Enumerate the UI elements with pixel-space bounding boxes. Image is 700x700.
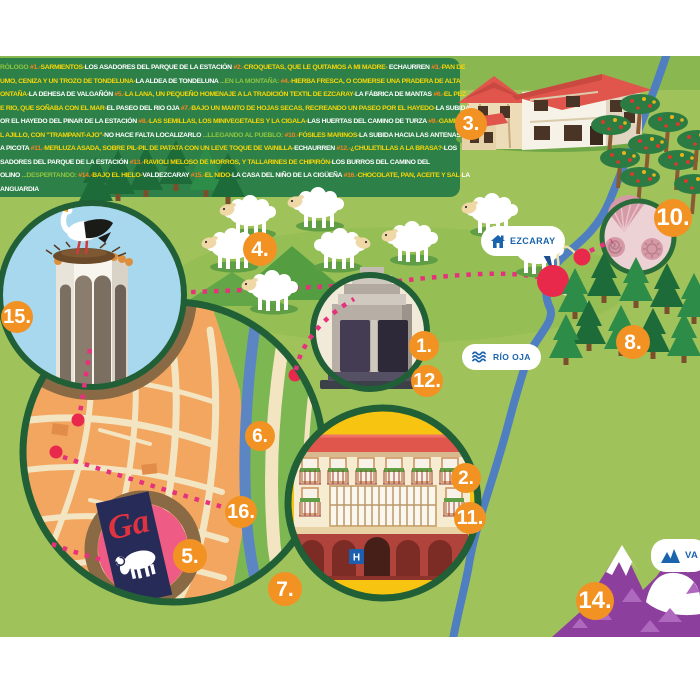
map-marker-8[interactable]: 8. — [616, 325, 650, 359]
legend-segment: PAN DE — [442, 64, 465, 71]
legend-segment: BAJO EL HIELO- — [92, 172, 142, 179]
legend-segment: LA LANA, UN PEQUEÑO HOMENAJE A LA TRADIC… — [125, 91, 355, 98]
menu-legend-panel: RÓLOGO #1.-SARMIENTOS-LOS ASADORES DEL P… — [0, 61, 462, 196]
valdezcaray-sign-label: VA — [685, 550, 698, 561]
legend-segment: ...LLEGANDO AL PUEBLO: — [201, 132, 284, 139]
legend-line: OLINO ...DESPERTANDO: #14.-BAJO EL HIELO… — [0, 169, 462, 183]
legend-segment: MERLUZA ASADA, SOBRE PIL-PIL DE PATATA C… — [44, 145, 294, 152]
legend-segment: EL PASEO DEL RIO OJA — [106, 105, 179, 112]
legend-segment: #13.- — [128, 159, 144, 166]
legend-line: L AJILLO, CON "TRAMPANT-AJO"-NO HACE FAL… — [0, 129, 462, 143]
glazed-gallery — [330, 486, 436, 526]
waves-icon — [472, 351, 488, 363]
legend-segment: LA DEHESA DE VALGAÑÓN — [29, 91, 113, 98]
legend-segment: E RIO, QUE SOÑABA CON EL MAR- — [0, 105, 106, 112]
church-tower — [54, 249, 133, 390]
map-marker-5[interactable]: 5. — [173, 539, 207, 573]
map-marker-2[interactable]: 2. — [451, 463, 481, 493]
mountain-icon — [661, 549, 680, 563]
svg-text:H: H — [353, 553, 360, 564]
legend-segment: A PICOTA — [0, 145, 29, 152]
legend-segment: #10.- — [285, 132, 299, 139]
legend-line: RÓLOGO #1.-SARMIENTOS-LOS ASADORES DEL P… — [0, 61, 462, 75]
legend-segment: SADORES DEL PARQUE DE LA ESTACIÓN — [0, 159, 128, 166]
legend-segment: #2.- — [232, 64, 244, 71]
legend-segment: VALDEZCARAY — [142, 172, 189, 179]
legend-line: ONTAÑA-LA DEHESA DE VALGAÑÓN #5.-LA LANA… — [0, 88, 462, 102]
legend-segment: #4.- — [281, 78, 292, 85]
legend-segment: ...EN LA MONTAÑA: — [218, 78, 280, 85]
house-icon — [491, 235, 505, 248]
hotel-building: H — [288, 436, 478, 580]
map-marker-14[interactable]: 14. — [576, 582, 614, 620]
map-marker-11[interactable]: 11. — [454, 502, 486, 534]
hotel-h-sign: H — [349, 549, 364, 564]
legend-segment: ANGUARDIA — [0, 186, 39, 193]
legend-line: ANGUARDIA — [0, 183, 462, 197]
legend-segment: L AJILLO, CON "TRAMPANT-AJO"- — [0, 132, 104, 139]
legend-segment: #15.- — [189, 172, 205, 179]
legend-line: A PICOTA #11.-MERLUZA ASADA, SOBRE PIL-P… — [0, 142, 462, 156]
legend-segment: #5.- — [113, 91, 125, 98]
legend-segment: #14.- — [78, 172, 92, 179]
legend-segment: OR EL HAYEDO DEL PINAR DE LA ESTACIÓN — [0, 118, 137, 125]
legend-segment: LA FÁBRICA DE MANTAS — [355, 91, 432, 98]
legend-segment: NO HACE FALTA LOCALIZARLO — [104, 132, 201, 139]
rio-oja-sign[interactable]: RÍO OJA — [462, 344, 541, 370]
ezcaray-sign[interactable]: EZCARAY — [481, 226, 565, 256]
legend-segment: EL NIDO- — [205, 172, 232, 179]
legend-segment: LAS HUERTAS DEL CAMINO DE TURZA — [307, 118, 426, 125]
rio-oja-sign-label: RÍO OJA — [493, 352, 531, 362]
top-margin — [0, 0, 700, 56]
legend-segment: LA SUBIDA HACIA LAS ANTENAS DE — [359, 132, 471, 139]
legend-segment: SARMIENTOS- — [41, 64, 85, 71]
valdezcaray-sign[interactable]: VA — [651, 539, 700, 572]
legend-segment: ...DESPERTANDO: — [22, 172, 79, 179]
legend-segment: LOS ASADORES DEL PARQUE DE LA ESTACIÓN — [85, 64, 232, 71]
legend-line: SADORES DEL PARQUE DE LA ESTACIÓN #13.-R… — [0, 156, 462, 170]
legend-line: E RIO, QUE SOÑABA CON EL MAR-EL PASEO DE… — [0, 102, 462, 116]
legend-segment: CHOCOLATE, PAN, ACEITE Y SAL- — [358, 172, 462, 179]
legend-segment: #12.- — [335, 145, 351, 152]
legend-segment: #8.- — [137, 118, 149, 125]
legend-segment: FÓSILES MARINOS- — [299, 132, 360, 139]
legend-segment: #1.- — [30, 64, 41, 71]
legend-segment: EL PEZ — [444, 91, 466, 98]
map-marker-7[interactable]: 7. — [268, 572, 302, 606]
bottom-margin — [0, 637, 700, 700]
legend-segment: RAVIOLI MELOSO DE MORROS, Y TALLARINES D… — [144, 159, 332, 166]
map-marker-12[interactable]: 12. — [411, 365, 443, 397]
map-marker-15[interactable]: 15. — [1, 301, 33, 333]
legend-segment: RÓLOGO — [0, 64, 30, 71]
legend-segment: LOS BURROS DEL CAMINO DEL — [332, 159, 430, 166]
map-marker-1[interactable]: 1. — [409, 331, 439, 361]
map-marker-10[interactable]: 10. — [654, 199, 692, 237]
legend-segment: HIERBA FRESCA, O COMERSE UNA PRADERA DE … — [291, 78, 460, 85]
legend-segment: LOS — [444, 145, 457, 152]
legend-segment: LA ALDEA DE TONDELUNA — [135, 78, 218, 85]
legend-segment: ECHAURREN — [294, 145, 335, 152]
legend-segment: OLINO — [0, 172, 22, 179]
legend-segment: #9.- — [427, 118, 439, 125]
hotel-circle: H — [288, 408, 478, 598]
church-tower-circle — [0, 203, 184, 390]
map-marker-3[interactable]: 3. — [455, 108, 487, 140]
legend-segment: BAJO UN MANTO DE HOJAS SECAS, RECREANDO … — [191, 105, 435, 112]
ezcaray-illustrated-map: Ga — [0, 0, 700, 700]
map-marker-16[interactable]: 16. — [225, 496, 257, 528]
legend-line: OR EL HAYEDO DEL PINAR DE LA ESTACIÓN #8… — [0, 115, 462, 129]
ezcaray-sign-label: EZCARAY — [510, 236, 555, 246]
legend-line: UMO, CENIZA Y UN TROZO DE TONDELUNA-LA A… — [0, 75, 462, 89]
legend-segment: LA — [461, 172, 469, 179]
legend-segment: UMO, CENIZA Y UN TROZO DE TONDELUNA- — [0, 78, 135, 85]
map-marker-6[interactable]: 6. — [245, 421, 275, 451]
legend-segment: ONTAÑA- — [0, 91, 29, 98]
legend-segment: #6.- — [432, 91, 444, 98]
legend-segment: LAS SEMILLAS, LOS MINIVEGETALES Y LA CIG… — [149, 118, 307, 125]
legend-segment: ECHAURREN — [389, 64, 430, 71]
legend-segment: #3.- — [430, 64, 442, 71]
legend-segment: LA CASA DEL NIÑO DE LA CIGÜEÑA — [232, 172, 342, 179]
trail-stop-dot — [574, 249, 591, 266]
village-houses — [456, 74, 656, 152]
legend-segment: #11.- — [29, 145, 44, 152]
legend-segment: ¿CHULETILLAS A LA BRASA?- — [350, 145, 443, 152]
map-marker-4[interactable]: 4. — [243, 232, 277, 266]
legend-segment: #16.- — [342, 172, 358, 179]
legend-segment: CROQUETAS, QUE LE QUITAMOS A MI MADRE- — [244, 64, 389, 71]
legend-segment: #7.- — [179, 105, 191, 112]
